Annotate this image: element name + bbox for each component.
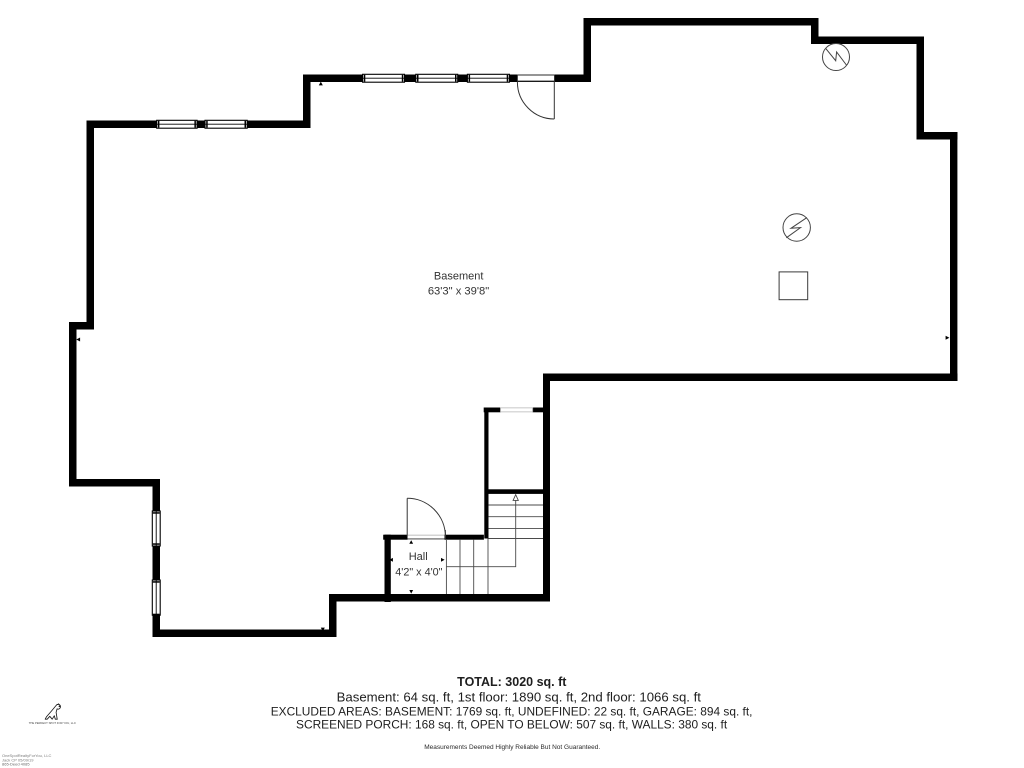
svg-text:Measurements Deemed Highly Rel: Measurements Deemed Highly Reliable But … [424,744,600,751]
svg-text:Basement: 64 sq. ft, 1st floor: Basement: 64 sq. ft, 1st floor: 1890 sq.… [337,689,702,704]
svg-text:Hall: Hall [409,551,428,563]
svg-text:4'2" x 4'0": 4'2" x 4'0" [395,567,442,579]
svg-text:SCREENED PORCH: 168 sq. ft, OP: SCREENED PORCH: 168 sq. ft, OPEN TO BELO… [296,718,728,732]
svg-text:63'3" x 39'8": 63'3" x 39'8" [428,286,489,298]
svg-text:865-Deed 4085: 865-Deed 4085 [2,762,30,767]
svg-text:TOTAL: 3020 sq. ft: TOTAL: 3020 sq. ft [457,675,567,689]
svg-text:Basement: Basement [434,271,484,283]
svg-text:EXCLUDED AREAS: BASEMENT: 1769: EXCLUDED AREAS: BASEMENT: 1769 sq. ft, U… [271,704,753,718]
svg-text:THE PERFECT SPOT FOR YOU, LLC: THE PERFECT SPOT FOR YOU, LLC [29,721,76,725]
